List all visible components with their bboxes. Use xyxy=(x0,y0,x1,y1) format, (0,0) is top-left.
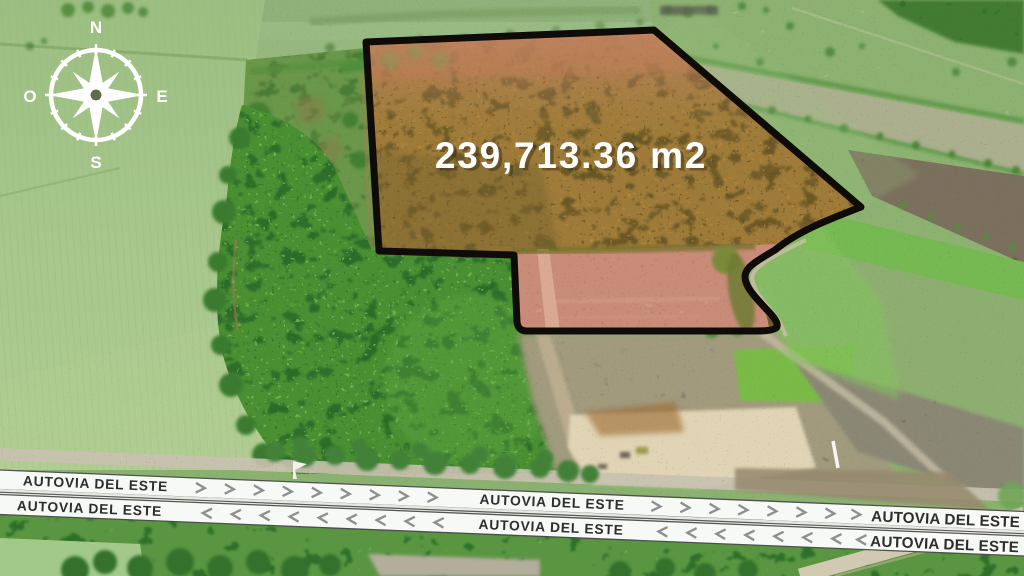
svg-text:E: E xyxy=(156,87,167,106)
svg-text:O: O xyxy=(23,87,36,106)
svg-text:S: S xyxy=(90,153,101,172)
svg-text:239,713.36 m2: 239,713.36 m2 xyxy=(435,135,707,176)
svg-text:N: N xyxy=(90,18,102,37)
